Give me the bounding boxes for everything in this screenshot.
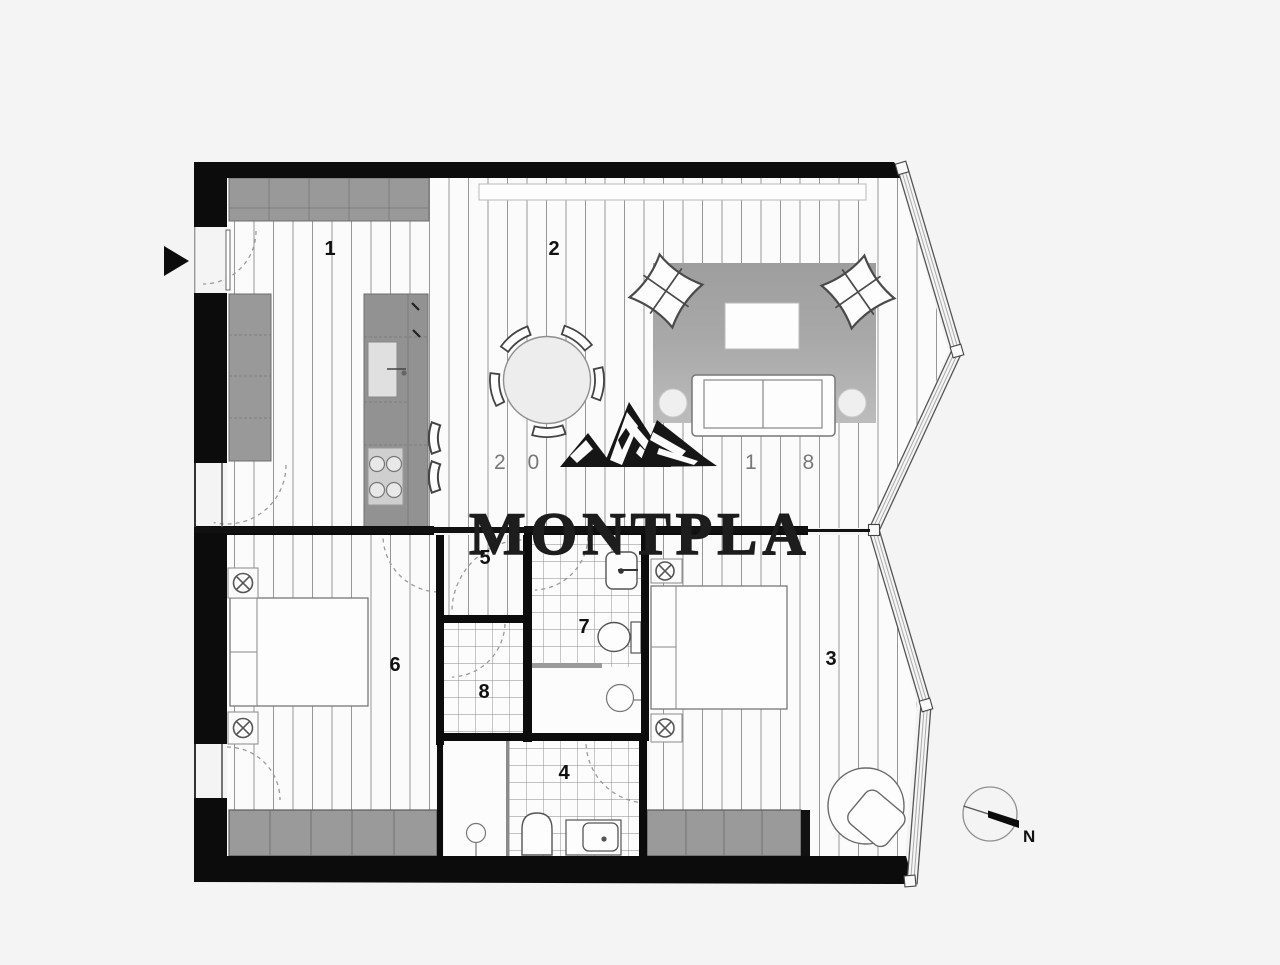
svg-text:6: 6 <box>389 654 400 676</box>
svg-text:1: 1 <box>324 238 335 260</box>
svg-text:2 0: 2 0 <box>494 451 547 474</box>
svg-text:7: 7 <box>578 616 589 638</box>
svg-text:MONTPLA: MONTPLA <box>469 501 811 567</box>
svg-text:4: 4 <box>558 762 570 784</box>
svg-text:2: 2 <box>548 238 559 260</box>
svg-text:5: 5 <box>479 547 490 569</box>
svg-text:3: 3 <box>825 648 836 670</box>
svg-text:8: 8 <box>478 681 489 703</box>
svg-text:1 8: 1 8 <box>745 451 834 474</box>
svg-text:N: N <box>1023 827 1035 846</box>
